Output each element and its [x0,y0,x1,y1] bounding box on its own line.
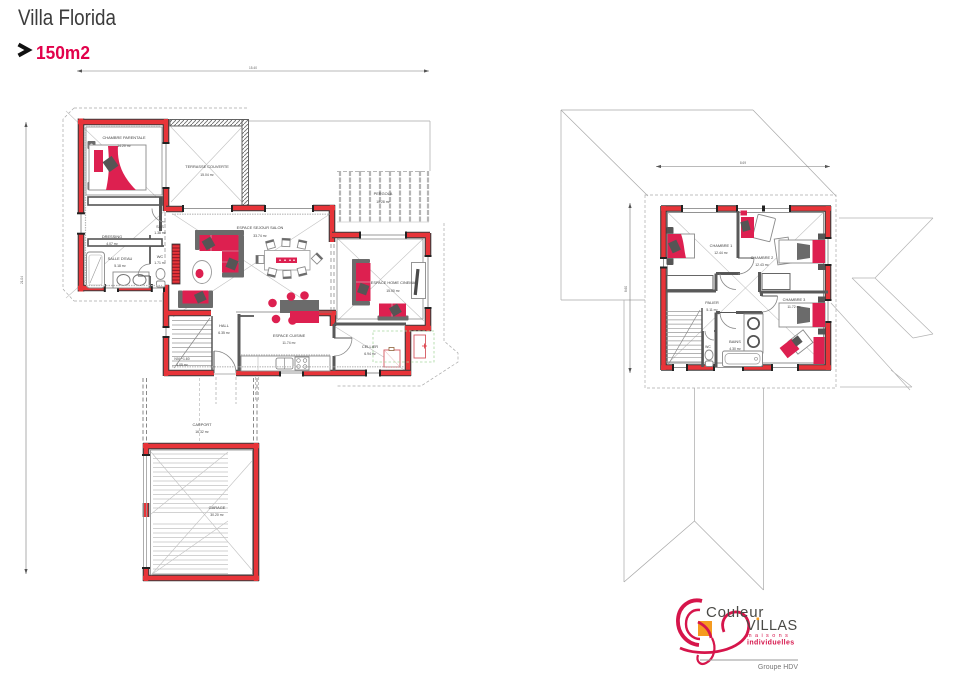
svg-text:1.71 m²: 1.71 m² [154,261,166,265]
svg-text:16.32 m²: 16.32 m² [195,430,209,434]
svg-text:HALL: HALL [219,323,230,328]
svg-text:150m2: 150m2 [36,42,90,63]
svg-text:10.28 m²: 10.28 m² [376,200,390,204]
svg-text:maisons: maisons [747,633,791,639]
svg-text:4.07 m²: 4.07 m² [106,242,118,246]
svg-text:1.05 m²: 1.05 m² [176,363,188,367]
svg-text:ESPACE SEJOUR SALON: ESPACE SEJOUR SALON [237,225,284,230]
svg-text:TERRASSE COUVERTE: TERRASSE COUVERTE [185,164,229,169]
svg-text:WC: WC [157,254,164,259]
svg-text:PALIER: PALIER [705,300,719,305]
svg-text:5.11 m²: 5.11 m² [706,308,718,312]
svg-text:Groupe HDV: Groupe HDV [758,664,798,671]
svg-text:SALLE D'EAU: SALLE D'EAU [108,256,133,261]
svg-text:33.74 m²: 33.74 m² [253,234,267,238]
svg-text:1.38 m²: 1.38 m² [154,231,166,235]
svg-text:BAINS: BAINS [729,339,741,344]
svg-text:DRESSING: DRESSING [102,234,122,239]
svg-text:ESPACE HOME CINEMA: ESPACE HOME CINEMA [371,280,416,285]
svg-text:CARPORT: CARPORT [193,422,213,427]
svg-text:15.00 m²: 15.00 m² [386,289,400,293]
svg-text:12.43 m²: 12.43 m² [755,263,769,267]
svg-text:4.30 m²: 4.30 m² [729,347,741,351]
svg-text:ESPACE CUISINE: ESPACE CUISINE [273,333,306,338]
svg-text:8.60: 8.60 [624,286,628,292]
svg-text:CHAMBRE 1: CHAMBRE 1 [710,243,733,248]
svg-text:SAS: SAS [156,224,164,229]
svg-text:11.74 m²: 11.74 m² [282,341,296,345]
svg-text:CHAMBRE 3: CHAMBRE 3 [783,297,806,302]
svg-text:CHAMBRE 2: CHAMBRE 2 [751,255,774,260]
svg-text:14.20 m²: 14.20 m² [117,144,131,148]
svg-text:PERGOLA: PERGOLA [374,191,393,196]
svg-text:6.35 m²: 6.35 m² [218,331,230,335]
svg-text:15.40: 15.40 [249,66,257,70]
svg-text:11.72 m²: 11.72 m² [787,305,801,309]
svg-text:NIV +1.60: NIV +1.60 [174,357,189,361]
svg-text:21.04: 21.04 [20,276,24,284]
svg-text:individuelles: individuelles [747,640,795,647]
svg-text:8.69: 8.69 [740,161,746,165]
svg-text:WC: WC [705,345,711,349]
svg-text:CHAMBRE PARENTALE: CHAMBRE PARENTALE [102,135,145,140]
svg-text:30.20 m²: 30.20 m² [210,513,224,517]
svg-text:12.44 m²: 12.44 m² [714,251,728,255]
svg-text:15.04 m²: 15.04 m² [200,173,214,177]
svg-text:5.18 m²: 5.18 m² [114,264,126,268]
svg-text:GARAGE: GARAGE [209,505,226,510]
svg-text:Villa Florida: Villa Florida [18,5,117,30]
svg-text:CELLIER: CELLIER [362,344,378,349]
svg-text:VILLAS: VILLAS [746,618,798,634]
svg-text:6.94 m²: 6.94 m² [364,352,376,356]
